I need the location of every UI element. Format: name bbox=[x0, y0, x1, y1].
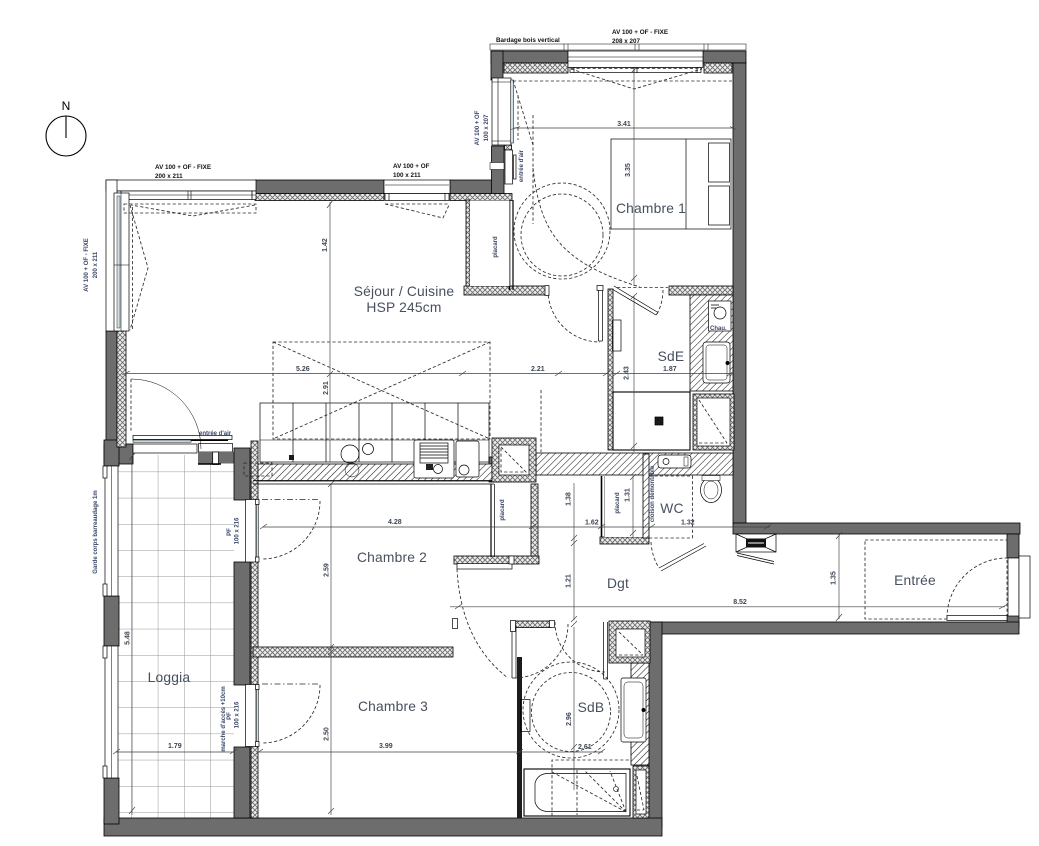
svg-text:1.21: 1.21 bbox=[566, 574, 573, 588]
svg-text:entrée d'air: entrée d'air bbox=[519, 149, 525, 182]
svg-text:AV 100 + OF: AV 100 + OF bbox=[393, 163, 430, 170]
svg-text:200 x 211: 200 x 211 bbox=[155, 173, 183, 180]
svg-text:1.87: 1.87 bbox=[663, 366, 677, 373]
svg-text:AV 100 + OF - FIXE: AV 100 + OF - FIXE bbox=[612, 29, 668, 36]
svg-text:200 x 211: 200 x 211 bbox=[93, 251, 99, 278]
svg-text:Loggia: Loggia bbox=[148, 670, 191, 685]
svg-text:1.42: 1.42 bbox=[322, 238, 329, 252]
svg-text:2.59: 2.59 bbox=[324, 563, 331, 577]
svg-text:SdE: SdE bbox=[658, 349, 685, 364]
svg-text:marche d'accès +10cm: marche d'accès +10cm bbox=[221, 686, 227, 751]
svg-text:AV 100 + OF: AV 100 + OF bbox=[475, 110, 481, 145]
svg-text:3.41: 3.41 bbox=[617, 121, 631, 128]
svg-text:SdB: SdB bbox=[578, 700, 605, 715]
svg-text:1.32: 1.32 bbox=[681, 520, 695, 527]
svg-text:1.38: 1.38 bbox=[566, 492, 573, 506]
svg-text:3.99: 3.99 bbox=[379, 743, 393, 750]
svg-text:1.79: 1.79 bbox=[168, 743, 182, 750]
svg-text:AV 100 + OF - FIXE: AV 100 + OF - FIXE bbox=[155, 164, 211, 171]
svg-text:2.21: 2.21 bbox=[531, 366, 545, 373]
svg-text:1.62: 1.62 bbox=[585, 520, 599, 527]
svg-text:8.52: 8.52 bbox=[733, 599, 747, 606]
svg-text:PF: PF bbox=[227, 528, 233, 536]
svg-text:placard: placard bbox=[493, 236, 499, 258]
svg-text:Bardage bois vertical: Bardage bois vertical bbox=[496, 37, 560, 44]
svg-text:4.28: 4.28 bbox=[388, 519, 402, 526]
svg-text:3.35: 3.35 bbox=[625, 163, 632, 177]
svg-text:cloison démontable: cloison démontable bbox=[650, 465, 656, 522]
svg-text:entrée d'air: entrée d'air bbox=[199, 431, 232, 437]
svg-text:208 x 207: 208 x 207 bbox=[612, 38, 641, 45]
svg-text:Garde corps barreaudage 1m: Garde corps barreaudage 1m bbox=[93, 490, 99, 573]
svg-text:5.26: 5.26 bbox=[296, 366, 310, 373]
svg-text:5.48: 5.48 bbox=[125, 631, 132, 645]
svg-text:2.43: 2.43 bbox=[624, 366, 631, 380]
svg-text:Chau.: Chau. bbox=[710, 326, 727, 332]
svg-text:1.31: 1.31 bbox=[625, 488, 632, 502]
svg-text:2.91: 2.91 bbox=[323, 381, 330, 395]
svg-text:100 x 211: 100 x 211 bbox=[393, 172, 421, 179]
svg-text:2.61: 2.61 bbox=[578, 744, 592, 751]
svg-text:Chambre 2: Chambre 2 bbox=[357, 550, 427, 565]
svg-text:Chambre 3: Chambre 3 bbox=[358, 699, 428, 714]
svg-text:100 x 216: 100 x 216 bbox=[235, 517, 241, 544]
svg-text:placard: placard bbox=[500, 499, 506, 521]
svg-text:HSP 245cm: HSP 245cm bbox=[366, 300, 441, 315]
svg-text:Dgt: Dgt bbox=[607, 576, 629, 591]
svg-text:2.50: 2.50 bbox=[324, 727, 331, 741]
svg-text:Entrée: Entrée bbox=[894, 573, 936, 588]
svg-text:AV 100 + OF - FIXE: AV 100 + OF - FIXE bbox=[84, 238, 90, 291]
svg-text:placard: placard bbox=[615, 492, 621, 514]
svg-text:PF: PF bbox=[227, 712, 233, 720]
svg-text:100 x 216: 100 x 216 bbox=[235, 701, 241, 728]
svg-text:Séjour / Cuisine: Séjour / Cuisine bbox=[354, 284, 455, 299]
svg-text:Chambre 1: Chambre 1 bbox=[616, 201, 686, 216]
svg-text:1.35: 1.35 bbox=[831, 571, 838, 585]
svg-text:100 x 207: 100 x 207 bbox=[484, 114, 490, 141]
svg-text:2.96: 2.96 bbox=[566, 712, 573, 726]
svg-text:N: N bbox=[62, 99, 71, 113]
svg-text:WC: WC bbox=[660, 501, 683, 516]
